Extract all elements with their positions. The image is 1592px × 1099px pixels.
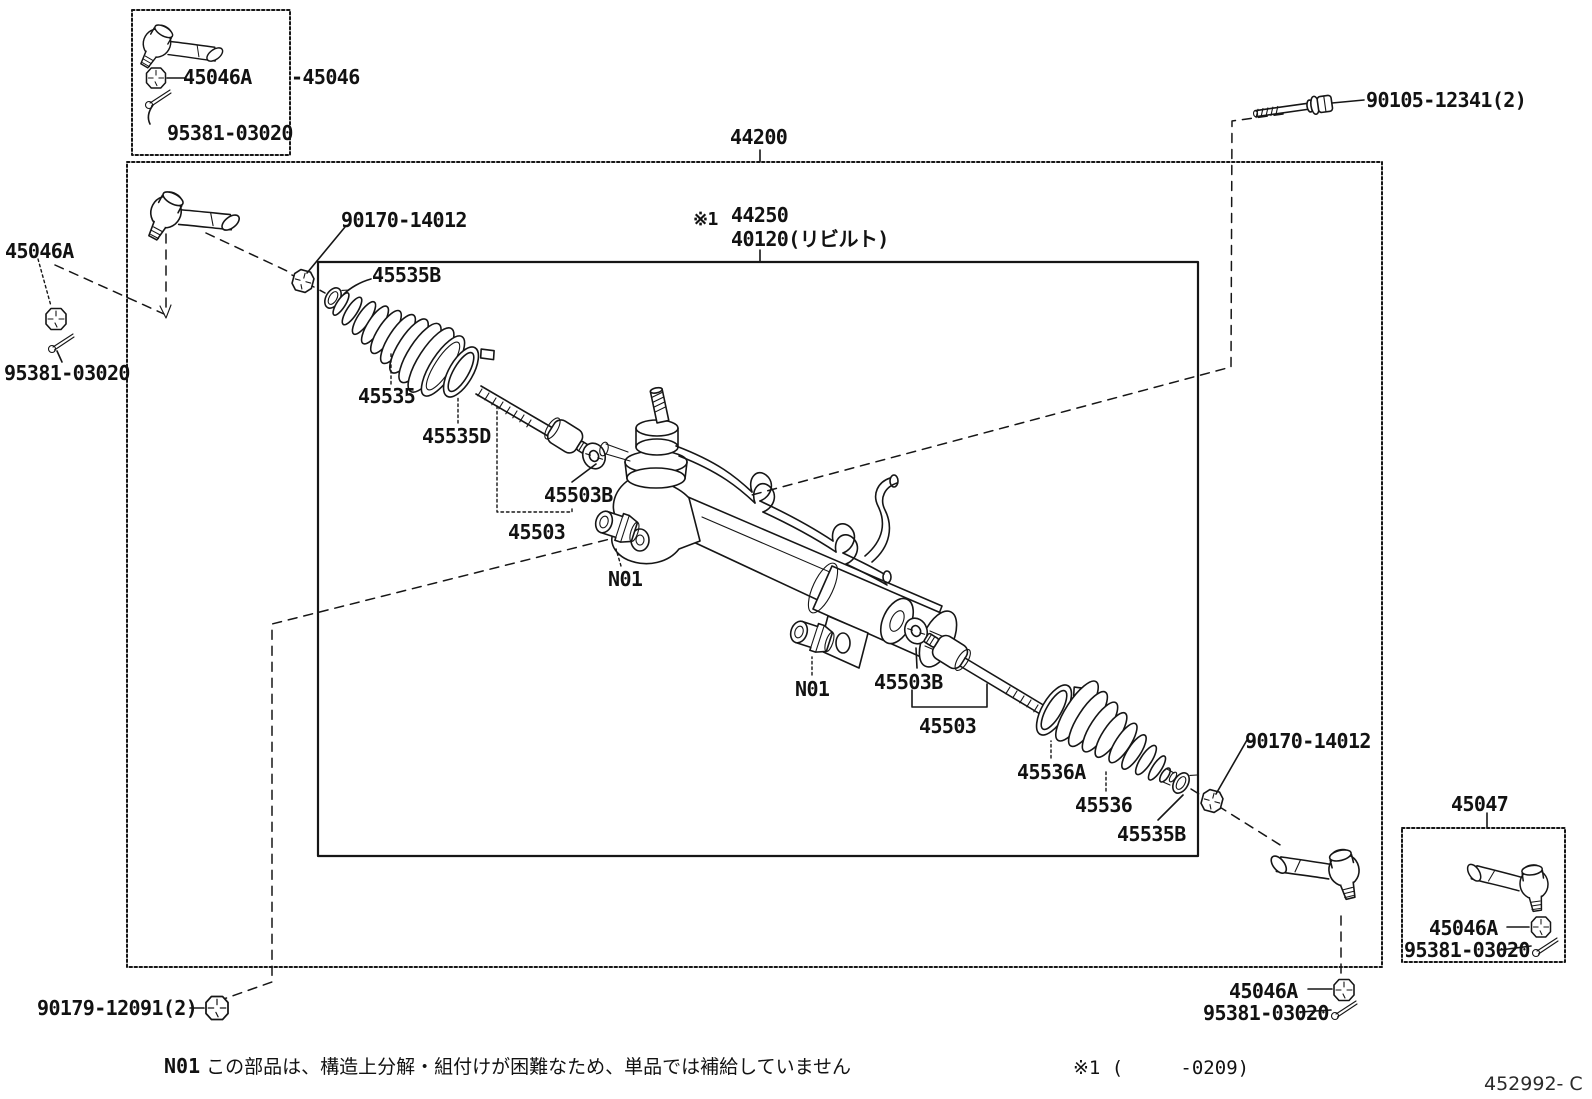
label-n01-front: N01 <box>608 568 642 590</box>
label-45046a-kit-left: 45046A <box>183 66 252 88</box>
footer-note-text: この部品は、構造上分解・組付けが困難なため、単品では補給していません <box>200 1056 851 1078</box>
label-45503-right: 45503 <box>919 715 976 737</box>
cotter-pin-bottom-right <box>1332 1001 1358 1020</box>
label-95381-bottom: 95381-03020 <box>1203 1002 1329 1024</box>
mount-nut-bottom-left <box>206 996 228 1019</box>
footer-note: N01 この部品は、構造上分解・組付けが困難なため、単品では補給していません <box>164 1052 851 1079</box>
label-45536-boot: 45536 <box>1075 794 1132 816</box>
label-45046a-bottom: 45046A <box>1229 980 1298 1002</box>
label-90179-nut: 90179-12091(2) <box>37 997 197 1019</box>
cotter-pin-kit-right <box>1533 938 1559 957</box>
label-45503b-left: 45503B <box>544 484 613 506</box>
label-45535b-right: 45535B <box>1117 823 1186 845</box>
label-44200-assembly: 44200 <box>730 126 787 148</box>
label-40120-reman: 40120(リビルト) <box>731 228 889 250</box>
label-44250-gear: 44250 <box>731 204 788 226</box>
label-90170-left: 90170-14012 <box>341 209 467 231</box>
tie-rod-end-drawing-kit-right <box>1464 852 1551 920</box>
diagram-line-art <box>0 0 1592 1099</box>
label-n01-rear: N01 <box>795 678 829 700</box>
cotter-pin-left <box>49 334 75 353</box>
label-45046a-left: 45046A <box>5 240 74 262</box>
label-45503-left: 45503 <box>508 521 565 543</box>
castle-nut-bottom-right <box>1334 980 1354 1001</box>
label-95381-left: 95381-03020 <box>4 362 130 384</box>
inner-tie-rod-left <box>476 386 596 462</box>
mount-bolt-drawing <box>1252 94 1333 123</box>
parts-diagram-page: 45046A -45046 95381-03020 45046A 95381-0… <box>0 0 1592 1099</box>
castle-nut-left <box>46 309 66 330</box>
label-45536a-clamp: 45536A <box>1017 761 1086 783</box>
footnote-ref1: ※1 ( -0209) <box>1073 1057 1249 1079</box>
label-45046a-kit-right: 45046A <box>1429 917 1498 939</box>
label-ref-mark: ※1 <box>693 210 718 230</box>
label-45535d-clamp: 45535D <box>422 425 491 447</box>
grommet-left <box>291 268 316 293</box>
label-90170-right: 90170-14012 <box>1245 730 1371 752</box>
grommet-right <box>1200 788 1225 813</box>
label-90105-bolt: 90105-12341(2) <box>1366 89 1526 111</box>
label-45046-group: -45046 <box>291 66 360 88</box>
label-45503b-right: 45503B <box>874 671 943 693</box>
cotter-pin-kit-left <box>146 90 172 109</box>
tie-rod-end-drawing-left <box>139 176 244 271</box>
castle-nut-kit-right <box>1532 917 1551 937</box>
doc-code: 452992- C <box>1484 1073 1583 1095</box>
label-45535-boot: 45535 <box>358 385 415 407</box>
footer-note-code: N01 <box>164 1054 200 1078</box>
tie-rod-end-drawing-right <box>1267 835 1365 915</box>
assembly-dashed-lines <box>55 114 1341 1001</box>
castle-nut-kit-left <box>147 68 166 88</box>
label-95381-kit-right: 95381-03020 <box>1404 939 1530 961</box>
label-45047-group: 45047 <box>1451 793 1508 815</box>
label-95381-kit-left: 95381-03020 <box>167 122 293 144</box>
label-45535b-left: 45535B <box>372 264 441 286</box>
boot-clamp-small-right <box>1169 767 1197 798</box>
